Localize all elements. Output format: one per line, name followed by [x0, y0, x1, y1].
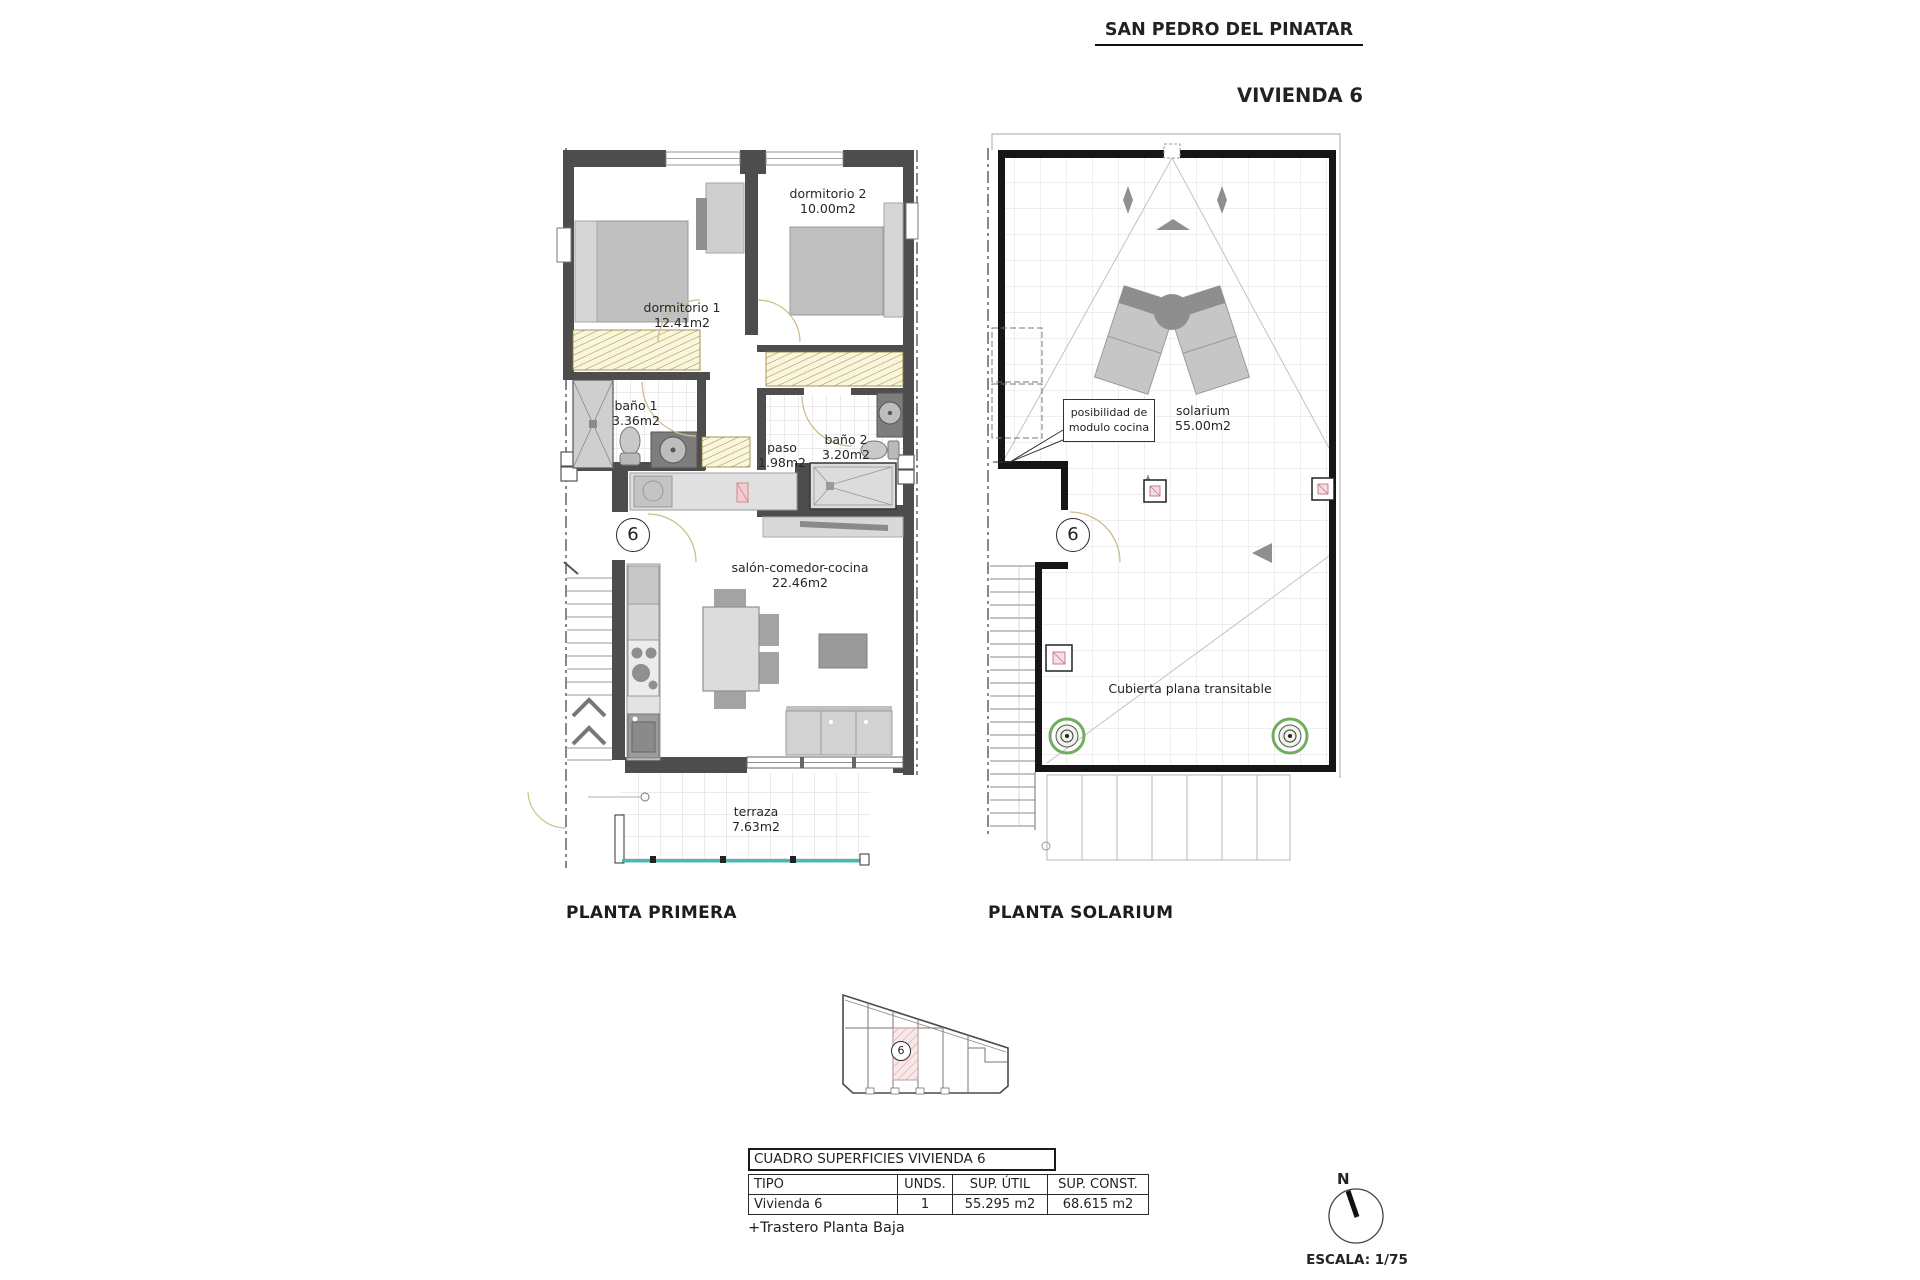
round-table: [1154, 294, 1190, 330]
roof-hatch: [1164, 144, 1180, 158]
unit-number-badge-site: 6: [891, 1041, 911, 1061]
unit-number-badge-floor1: 6: [616, 518, 650, 552]
surface-table-header-row: TIPO UNDS. SUP. ÚTIL SUP. CONST.: [749, 1175, 1149, 1195]
surface-table-grid: TIPO UNDS. SUP. ÚTIL SUP. CONST. Viviend…: [748, 1174, 1149, 1215]
stairs-solarium: [990, 566, 1035, 830]
stairs-floor1: [528, 578, 612, 828]
dorm1-desk: [696, 183, 744, 253]
dining-set: [703, 589, 779, 709]
floor-plan-drawing: [0, 0, 1920, 1280]
col-sup-util: SUP. ÚTIL: [953, 1175, 1048, 1195]
planta-solarium-plan: [988, 134, 1340, 860]
room-label-bano2: baño 2 3.20m2: [766, 432, 926, 463]
room-label-terraza: terraza 7.63m2: [676, 804, 836, 835]
col-tipo: TIPO: [749, 1175, 898, 1195]
scale-label: ESCALA: 1/75: [1302, 1252, 1412, 1268]
surface-table: CUADRO SUPERFICIES VIVIENDA 6 TIPO UNDS.…: [748, 1148, 1149, 1236]
site-key-plan: [843, 995, 1008, 1094]
compass-rose: [1329, 1189, 1383, 1243]
col-unds: UNDS.: [898, 1175, 953, 1195]
cell-unds: 1: [898, 1195, 953, 1215]
sofa: [786, 706, 892, 755]
kitchen-counter: [627, 564, 660, 760]
pergola-below: [1042, 775, 1290, 860]
terrace-sliding-door: [747, 757, 903, 768]
floor1-plan-title: PLANTA PRIMERA: [566, 903, 737, 923]
solarium-plan-title: PLANTA SOLARIUM: [988, 903, 1173, 923]
room-label-dormitorio2: dormitorio 2 10.00m2: [748, 186, 908, 217]
north-label: N: [1337, 1170, 1350, 1188]
cell-sup-util: 55.295 m2: [953, 1195, 1048, 1215]
roof-note: Cubierta plana transitable: [1090, 681, 1290, 696]
media-shelf: [763, 517, 903, 537]
table-footnote: +Trastero Planta Baja: [748, 1220, 1149, 1236]
room-label-bano1: baño 1 3.36m2: [556, 398, 716, 429]
dorm2-bed: [790, 203, 903, 317]
surface-table-data-row: Vivienda 6 1 55.295 m2 68.615 m2: [749, 1195, 1149, 1215]
surface-table-title: CUADRO SUPERFICIES VIVIENDA 6: [748, 1148, 1056, 1171]
blueprint-page: SAN PEDRO DEL PINATAR VIVIENDA 6 dormito…: [0, 0, 1920, 1280]
entry-counter: [630, 473, 797, 510]
cell-sup-const: 68.615 m2: [1048, 1195, 1149, 1215]
kitchen-module-note: posibilidad de modulo cocina: [1063, 399, 1155, 442]
project-location-title: SAN PEDRO DEL PINATAR: [1095, 20, 1363, 46]
room-label-salon: salón-comedor-cocina 22.46m2: [700, 560, 900, 591]
unit-number-badge-solarium: 6: [1056, 518, 1090, 552]
room-label-dormitorio1: dormitorio 1 12.41m2: [602, 300, 762, 331]
planta-primera-plan: [528, 148, 918, 868]
cell-tipo: Vivienda 6: [749, 1195, 898, 1215]
col-sup-const: SUP. CONST.: [1048, 1175, 1149, 1195]
tv-unit: [819, 634, 867, 668]
unit-title: VIVIENDA 6: [1203, 84, 1363, 107]
